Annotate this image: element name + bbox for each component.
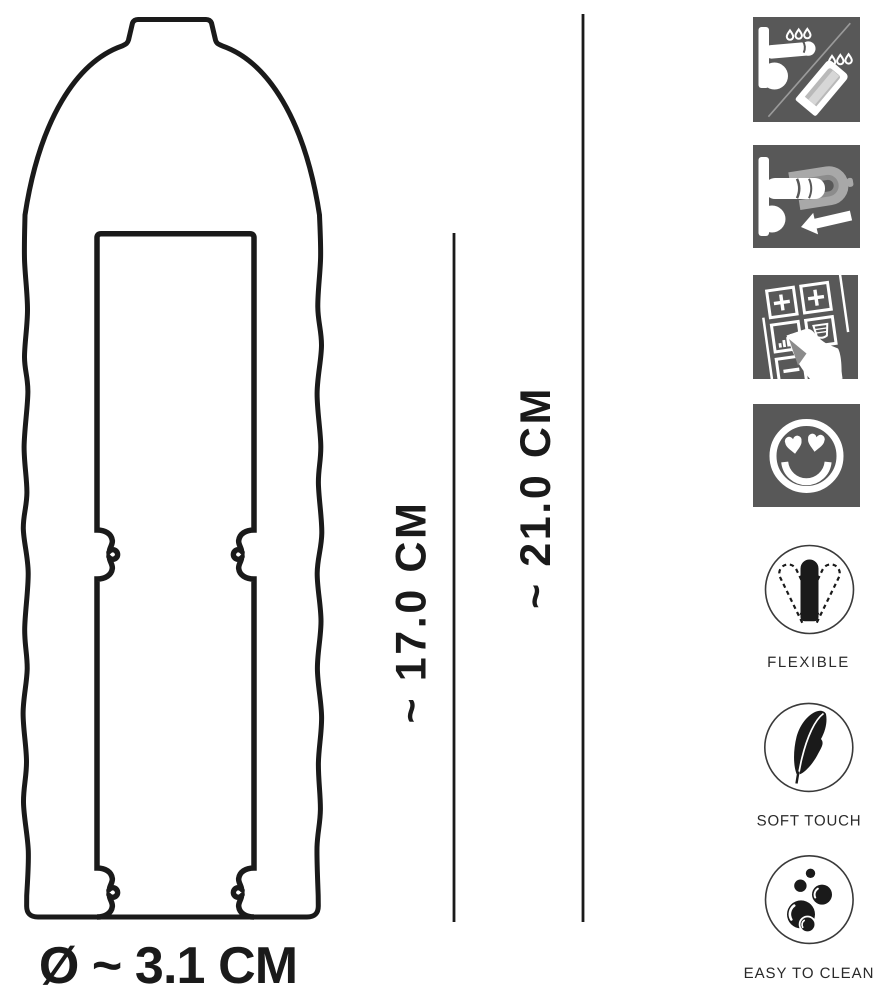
svg-text:~ 17.0 CM: ~ 17.0 CM — [388, 501, 436, 724]
svg-text:EASY TO CLEAN: EASY TO CLEAN — [744, 965, 875, 982]
svg-text:Ø ~ 3.1 CM: Ø ~ 3.1 CM — [39, 937, 297, 995]
svg-text:~ 21.0 CM: ~ 21.0 CM — [512, 386, 560, 609]
svg-text:SOFT TOUCH: SOFT TOUCH — [757, 813, 862, 830]
svg-text:FLEXIBLE: FLEXIBLE — [767, 654, 850, 671]
